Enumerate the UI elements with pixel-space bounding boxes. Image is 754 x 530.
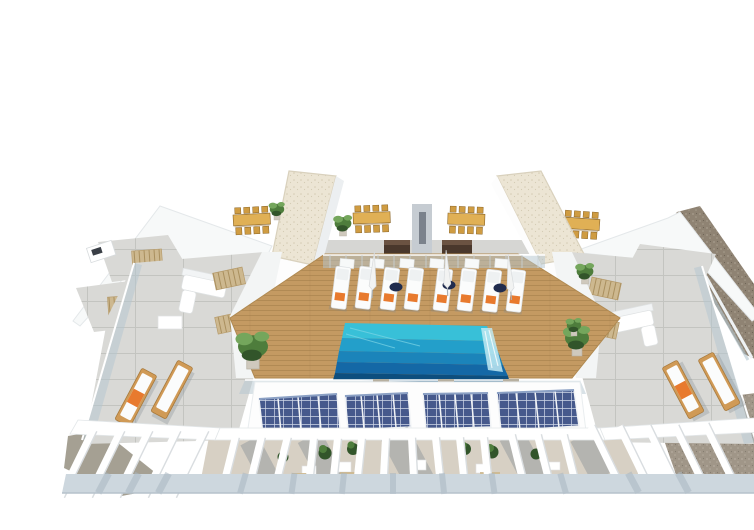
side-table-3 <box>494 284 507 293</box>
solar-array-3 <box>423 393 491 429</box>
rooftop-pool-render <box>40 16 754 514</box>
solar-array-4 <box>497 390 579 431</box>
side-table-1 <box>390 283 403 292</box>
left-coffee-table <box>158 316 182 329</box>
solar-array-2 <box>345 393 411 430</box>
swimming-pool <box>333 323 510 383</box>
render-canvas <box>40 16 754 514</box>
ground-walkway <box>62 471 754 494</box>
stair-doorway <box>419 212 426 244</box>
